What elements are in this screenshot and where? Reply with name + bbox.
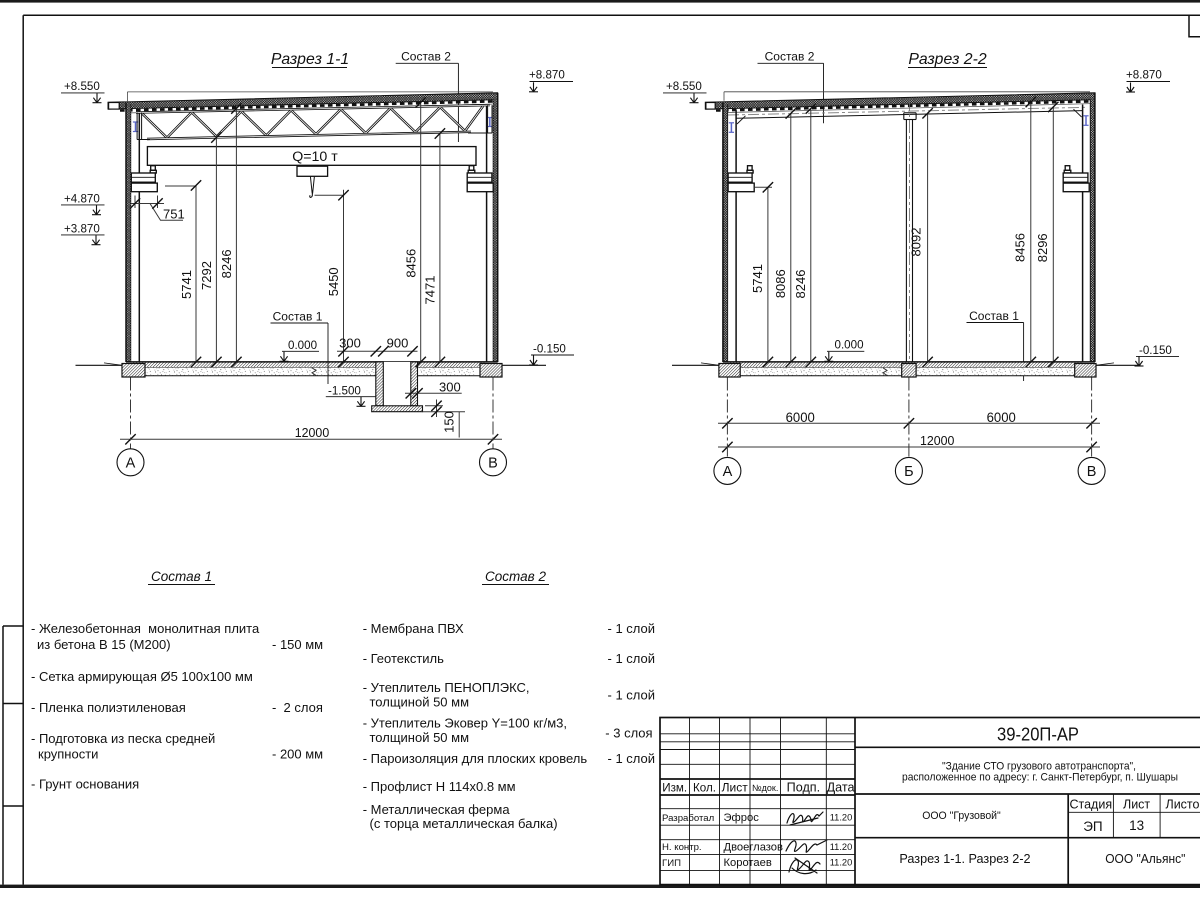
svg-text:Коротаев: Коротаев [724, 857, 772, 869]
svg-text:Состав 2: Состав 2 [401, 50, 451, 64]
svg-text:-1.500: -1.500 [328, 385, 361, 398]
svg-text:Состав 1: Состав 1 [273, 309, 323, 323]
svg-text:300: 300 [339, 336, 361, 351]
svg-text:Б: Б [904, 464, 914, 480]
svg-text:11.20: 11.20 [830, 812, 853, 822]
svg-text:- Сетка армирующая Ø5 100х100: - Сетка армирующая Ø5 100х100 мм [31, 669, 253, 684]
svg-text:- Подготовка из песка средней: - Подготовка из песка средней [31, 731, 215, 746]
svg-text:+8.870: +8.870 [529, 69, 565, 82]
svg-text:7292: 7292 [199, 261, 214, 290]
svg-text:Стадия: Стадия [1069, 798, 1112, 812]
svg-text:Разработал: Разработал [662, 813, 714, 824]
svg-text:В: В [488, 456, 498, 472]
svg-text:ООО "Грузовой": ООО "Грузовой" [922, 810, 1001, 822]
svg-text:толщиной 50 мм: толщиной 50 мм [370, 695, 470, 710]
svg-text:-0.150: -0.150 [533, 343, 566, 356]
svg-text:Н. контр.: Н. контр. [662, 842, 702, 853]
svg-text:- 3 слоя: - 3 слоя [605, 725, 652, 740]
svg-text:0.000: 0.000 [288, 339, 317, 352]
svg-text:6000: 6000 [786, 410, 815, 425]
svg-text:А: А [126, 456, 136, 472]
svg-text:Состав 1: Состав 1 [151, 569, 212, 584]
svg-text:12000: 12000 [920, 433, 954, 448]
svg-text:-0.150: -0.150 [1139, 344, 1172, 357]
svg-text:Разрез 1-1. Разрез 2-2: Разрез 1-1. Разрез 2-2 [899, 851, 1030, 866]
svg-text:+8.870: +8.870 [1126, 69, 1162, 82]
svg-text:крупности: крупности [38, 747, 98, 762]
svg-text:ЭП: ЭП [1083, 819, 1102, 834]
svg-text:+3.870: +3.870 [64, 223, 100, 236]
svg-text:5450: 5450 [326, 267, 341, 296]
svg-text:ООО "Альянс": ООО "Альянс" [1105, 851, 1186, 866]
svg-text:№док.: №док. [752, 783, 778, 793]
svg-text:Листов: Листов [1166, 798, 1200, 812]
svg-text:8092: 8092 [908, 228, 923, 257]
svg-text:5741: 5741 [179, 270, 194, 299]
svg-text:- Утеплитель ПЕНОПЛЭКС,: - Утеплитель ПЕНОПЛЭКС, [363, 680, 530, 695]
svg-text:Лист: Лист [722, 781, 749, 795]
svg-text:8086: 8086 [773, 269, 788, 298]
svg-text:7471: 7471 [423, 276, 438, 305]
svg-text:Дата: Дата [827, 781, 855, 795]
svg-text:900: 900 [387, 336, 409, 351]
svg-text:8456: 8456 [404, 249, 419, 278]
svg-text:Лист: Лист [1123, 798, 1150, 812]
svg-text:- Грунт основания: - Грунт основания [31, 776, 139, 791]
svg-text:751: 751 [163, 207, 185, 222]
svg-text:толщиной 50 мм: толщиной 50 мм [370, 730, 470, 745]
svg-text:13: 13 [1129, 818, 1144, 833]
svg-text:150: 150 [442, 411, 457, 433]
svg-text:8246: 8246 [219, 249, 234, 278]
svg-text:- 2 слоя: - 2 слоя [272, 700, 323, 715]
svg-text:Изм.: Изм. [662, 782, 687, 795]
svg-text:Q=10 т: Q=10 т [292, 149, 338, 165]
svg-text:Эфрос: Эфрос [724, 812, 760, 824]
svg-text:0.000: 0.000 [835, 339, 864, 352]
svg-text:(с торца металлическая балка): (с торца металлическая балка) [370, 816, 558, 831]
svg-text:- 200 мм: - 200 мм [272, 747, 323, 762]
svg-text:ГИП: ГИП [662, 858, 681, 869]
svg-text:Подп.: Подп. [787, 781, 820, 795]
svg-text:Разрез 2-2: Разрез 2-2 [908, 51, 986, 68]
svg-text:- Геотекстиль: - Геотекстиль [363, 651, 444, 666]
svg-text:+8.550: +8.550 [64, 80, 100, 93]
svg-text:Состав 1: Состав 1 [969, 309, 1019, 323]
svg-text:В: В [1087, 464, 1097, 480]
svg-text:- 150 мм: - 150 мм [272, 637, 323, 652]
svg-text:- 1 слой: - 1 слой [608, 751, 656, 766]
svg-text:- Пленка полиэтиленовая: - Пленка полиэтиленовая [31, 700, 186, 715]
svg-text:- 1 слой: - 1 слой [608, 621, 656, 636]
svg-text:6000: 6000 [987, 410, 1016, 425]
svg-text:8296: 8296 [1035, 233, 1050, 262]
svg-text:- Мембрана ПВХ: - Мембрана ПВХ [363, 621, 464, 636]
svg-text:300: 300 [439, 380, 461, 395]
svg-text:Разрез 1-1: Разрез 1-1 [271, 51, 349, 68]
svg-text:Состав 2: Состав 2 [765, 50, 815, 64]
svg-text:- 1 слой: - 1 слой [608, 687, 656, 702]
svg-text:8456: 8456 [1013, 233, 1028, 262]
svg-text:- Металлическая ферма: - Металлическая ферма [363, 802, 511, 817]
svg-text:12000: 12000 [295, 425, 329, 440]
svg-text:расположенное по адресу: г. Са: расположенное по адресу: г. Санкт-Петерб… [902, 772, 1178, 784]
svg-text:- 1 слой: - 1 слой [608, 651, 656, 666]
svg-text:- Утеплитель Эковер Y=100 кг/м: - Утеплитель Эковер Y=100 кг/м3, [363, 715, 567, 730]
svg-text:+8.550: +8.550 [666, 80, 702, 93]
svg-text:11.20: 11.20 [830, 842, 853, 852]
svg-text:+4.870: +4.870 [64, 193, 100, 206]
svg-text:- Железобетонная монолитная п: - Железобетонная монолитная плита [31, 621, 260, 636]
svg-text:11.20: 11.20 [830, 858, 853, 868]
svg-text:А: А [723, 464, 733, 480]
svg-text:из бетона В 15 (М200): из бетона В 15 (М200) [37, 637, 171, 652]
svg-text:8246: 8246 [793, 270, 808, 299]
svg-text:39-20П-АР: 39-20П-АР [997, 724, 1079, 745]
svg-text:5741: 5741 [750, 264, 765, 293]
svg-text:Кол.: Кол. [693, 782, 716, 795]
svg-text:- Пароизоляция для плоских кро: - Пароизоляция для плоских кровель [363, 751, 588, 766]
svg-text:- Профлист Н 114х0.8 мм: - Профлист Н 114х0.8 мм [363, 779, 516, 794]
svg-text:Состав 2: Состав 2 [485, 569, 546, 584]
svg-text:Двоеглазов: Двоеглазов [724, 841, 784, 853]
